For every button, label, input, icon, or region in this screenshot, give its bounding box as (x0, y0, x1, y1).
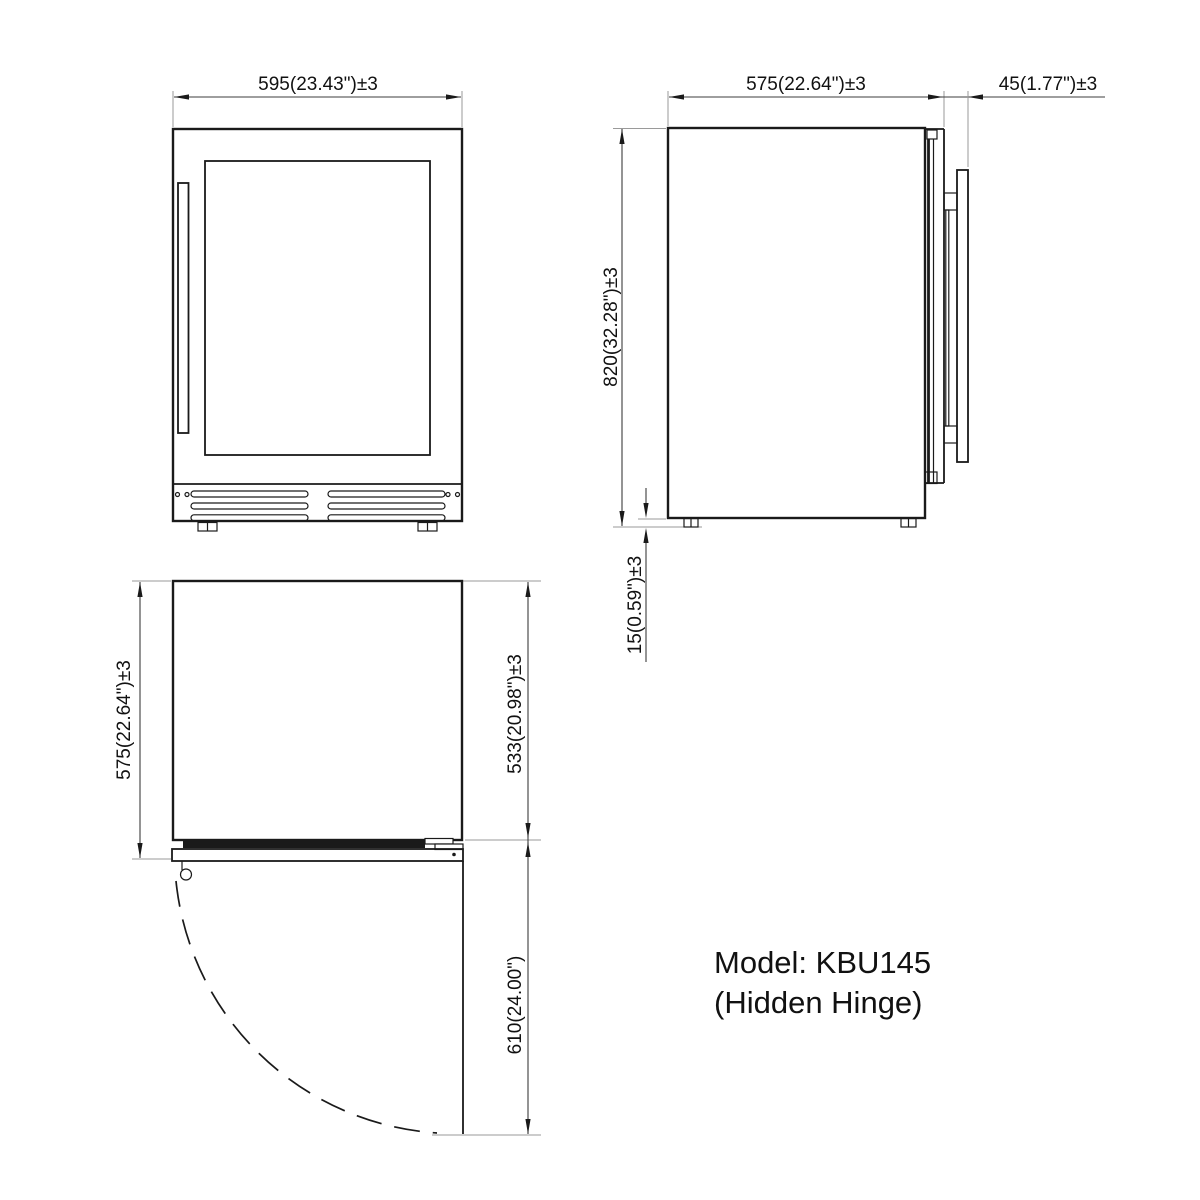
front-width-label: 595(23.43")±3 (258, 74, 378, 95)
arrowhead (643, 503, 648, 518)
top-hinge-pin (452, 853, 456, 857)
side-bottom-hinge (925, 472, 937, 484)
side-foot-front (901, 519, 916, 528)
front-foot-right (418, 523, 437, 532)
front-cabinet-outline (173, 129, 462, 521)
side-handle-label: 45(1.77")±3 (999, 74, 1098, 95)
side-depth-label: 575(22.64")±3 (746, 74, 866, 95)
side-handle-plate (946, 210, 949, 426)
side-door-panel (924, 129, 944, 484)
front-vent-slat (191, 503, 308, 509)
top-door-closed (172, 839, 463, 862)
arrowhead (137, 843, 142, 858)
side-height-dimension: 820(32.28")±3 (601, 129, 702, 528)
side-handle-bar (957, 170, 968, 462)
arrowhead (525, 823, 530, 838)
front-foot-left (198, 523, 217, 532)
arrowhead (174, 94, 189, 99)
door-swing-arc (176, 881, 437, 1133)
side-handle-dimension: 45(1.77")±3 (968, 74, 1097, 167)
top-depth-label: 575(22.64")±3 (114, 660, 135, 780)
front-vent-slat (328, 491, 445, 497)
side-leg-label: 15(0.59")±3 (625, 556, 646, 655)
arrowhead (928, 94, 943, 99)
side-cabinet-outline (668, 128, 925, 518)
top-door-frame (172, 849, 463, 861)
side-hinge-recess (927, 130, 937, 139)
arrowhead (446, 94, 461, 99)
top-body-depth-label: 533(20.98")±3 (505, 654, 526, 774)
top-cabinet-outline (173, 581, 462, 840)
arrowhead (525, 1119, 530, 1134)
model-name-text: Model: KBU145 (714, 945, 931, 980)
arrowhead (643, 528, 648, 543)
model-hinge-text: (Hidden Hinge) (714, 985, 923, 1020)
top-door-glass-edge (183, 841, 425, 848)
side-handle-bracket (944, 193, 957, 210)
front-screw (176, 493, 180, 497)
top-door-hinge (425, 839, 453, 845)
top-body-depth-dimension: 533(20.98")±3 (463, 581, 541, 1134)
side-view: 575(22.64")±3 45(1.77")±3 820(32.28")±3 … (601, 74, 1105, 662)
technical-drawing-page: 595(23.43")±3 (0, 0, 1200, 1200)
arrowhead (525, 582, 530, 597)
top-door-swing-label: 610(24.00") (505, 956, 526, 1055)
model-label: Model: KBU145 (Hidden Hinge) (714, 945, 931, 1020)
top-door-handle (181, 861, 192, 880)
arrowhead (968, 94, 983, 99)
side-leg-height-dimension: 15(0.59")±3 (625, 488, 666, 662)
front-door-glass (205, 161, 430, 455)
arrowhead (137, 582, 142, 597)
arrowhead (619, 511, 624, 526)
arrowhead (619, 129, 624, 144)
top-depth-dimension: 575(22.64")±3 (114, 581, 171, 859)
front-door-handle (178, 183, 189, 433)
arrowhead (669, 94, 684, 99)
side-foot-back (684, 519, 698, 528)
top-view: 575(22.64")±3 533(20.98")±3 610(24.00") (114, 581, 541, 1135)
arrowhead (525, 842, 530, 857)
front-vent-grille (176, 491, 460, 521)
dimension-drawing: 595(23.43")±3 (0, 0, 1200, 1200)
front-screw (185, 493, 189, 497)
front-screw (446, 493, 450, 497)
front-vent-slat (191, 491, 308, 497)
side-handle-bracket (944, 426, 957, 443)
front-vent-slat (328, 503, 445, 509)
front-screw (456, 493, 460, 497)
side-door-handle (944, 170, 968, 462)
front-width-dimension: 595(23.43")±3 (173, 74, 462, 127)
top-door-swing-dimension: 610(24.00") (432, 842, 541, 1135)
side-height-label: 820(32.28")±3 (601, 267, 622, 387)
front-view: 595(23.43")±3 (173, 74, 462, 531)
